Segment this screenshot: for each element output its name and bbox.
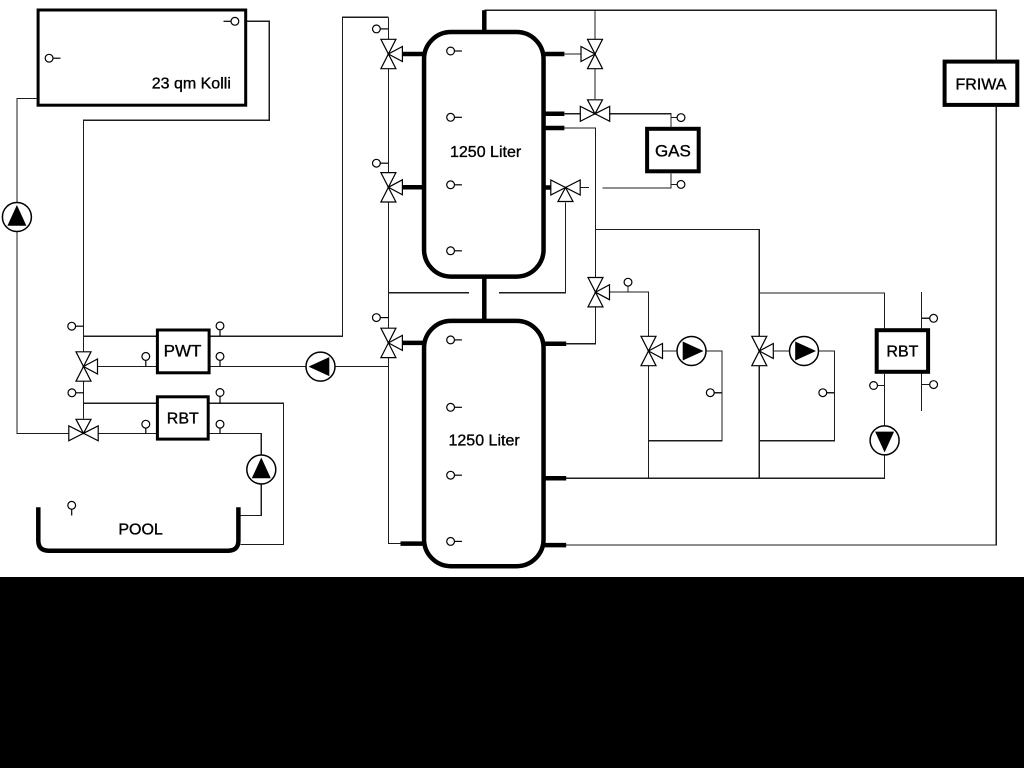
svg-text:RBT: RBT — [886, 344, 918, 361]
svg-text:FRIWA: FRIWA — [956, 76, 1007, 93]
svg-text:GAS: GAS — [655, 141, 691, 160]
svg-text:1250 Liter: 1250 Liter — [449, 432, 521, 449]
svg-text:23 qm Kolli: 23 qm Kolli — [152, 76, 231, 93]
svg-text:PWT: PWT — [164, 342, 202, 361]
svg-text:1250 Liter: 1250 Liter — [450, 144, 522, 161]
svg-text:POOL: POOL — [118, 522, 163, 539]
svg-text:RBT: RBT — [167, 410, 199, 427]
